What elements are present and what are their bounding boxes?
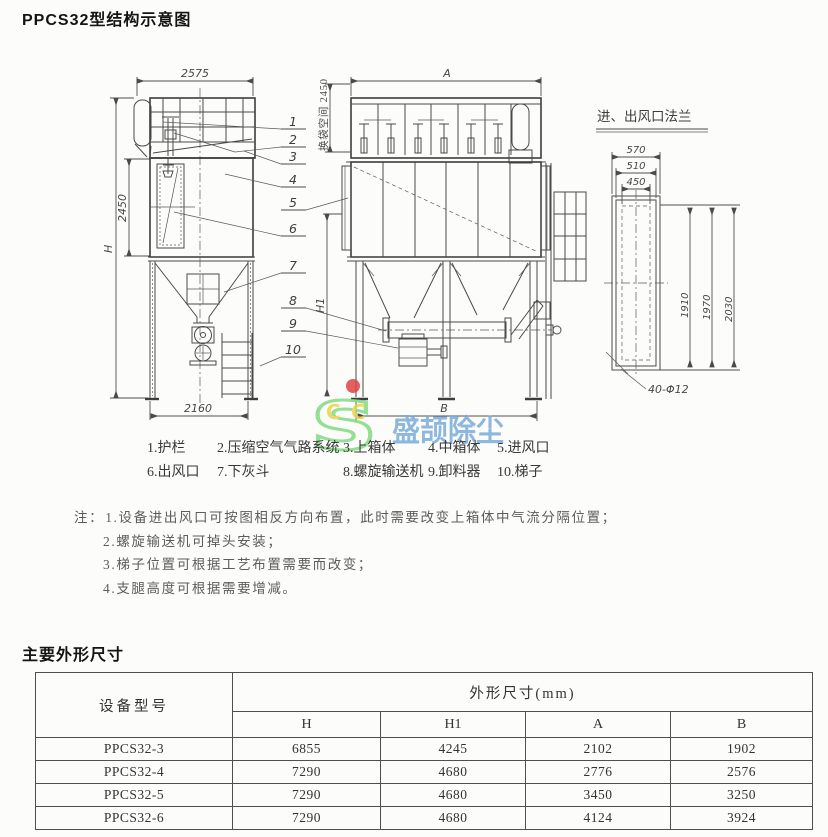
dim-flange-inner-width: 450 [626,177,645,188]
value-cell: 1902 [671,738,813,761]
front-view: A [314,67,586,421]
model-cell: PPCS32-4 [36,761,233,784]
legend-item-2: 2.压缩空气气路系统 [217,437,340,457]
table-header-h: H [233,712,381,738]
table-row: PPCS32-6 7290 4680 4124 3924 [36,807,813,830]
part-label-6: 6 [289,221,297,236]
dim-front-base-width: B [440,402,448,415]
dim-side-base-width: 2160 [184,402,212,415]
watermark-letter-c2: C [351,400,366,424]
value-cell: 3924 [671,807,813,830]
value-cell: 7290 [233,761,381,784]
value-cell: 7290 [233,784,381,807]
table-header-b: B [671,712,813,738]
note-3: 3.梯子位置可根据工艺布置需要而改变； [74,553,617,577]
value-cell: 2576 [671,761,813,784]
legend-item-7: 7.下灰斗 [217,461,270,481]
table-header-a: A [526,712,671,738]
part-label-7: 7 [289,258,297,273]
dim-overall-height: H [102,245,115,253]
flange-view: 进、出风口法兰 570 510 450 [596,109,740,396]
dimensions-table: 设备型号 外形尺寸(mm) H H1 A B PPCS32-3 6855 424… [35,672,813,830]
table-row: PPCS32-4 7290 4680 2776 2576 [36,761,813,784]
table-header-model: 设备型号 [36,673,233,738]
value-cell: 3450 [526,784,671,807]
model-cell: PPCS32-5 [36,784,233,807]
value-cell: 4680 [381,784,526,807]
part-label-1: 1 [289,114,297,129]
table-header-group: 外形尺寸(mm) [233,673,813,712]
side-view: 2575 H 2450 [102,67,350,420]
part-label-4: 4 [289,172,297,187]
value-cell: 4680 [381,761,526,784]
legend-item-5: 5.进风口 [497,437,550,457]
value-cell: 6855 [233,738,381,761]
part-label-3: 3 [289,149,297,164]
value-cell: 7290 [233,807,381,830]
dim-side-top-width: 2575 [181,67,209,80]
table-row: PPCS32-3 6855 4245 2102 1902 [36,738,813,761]
model-cell: PPCS32-3 [36,738,233,761]
legend-item-9: 9.卸料器 [428,461,481,481]
value-cell: 4124 [526,807,671,830]
value-cell: 2776 [526,761,671,784]
note-4: 4.支腿高度可根据需要增减。 [74,577,617,601]
dim-support-height: H1 [314,298,327,313]
table-header-h1: H1 [381,712,526,738]
notes-block: 注：1.设备进出风口可按图相反方向布置，此时需要改变上箱体中气流分隔位置； 2.… [74,506,617,600]
value-cell: 4245 [381,738,526,761]
dimensions-section-title: 主要外形尺寸 [22,641,124,665]
catalog-page: PPCS32型结构示意图 2575 H 2450 [0,0,828,837]
dim-flange-height-mid: 1970 [702,295,713,320]
part-label-10: 10 [285,342,301,357]
dim-flange-height-outer: 2030 [724,297,735,322]
part-label-5: 5 [289,195,297,210]
dim-flange-height-inner: 1910 [680,293,691,318]
value-cell: 3250 [671,784,813,807]
part-label-9: 9 [289,316,297,331]
technical-drawing: 2575 H 2450 [0,0,828,500]
part-label-8: 8 [289,293,297,308]
note-1: 1.设备进出风口可按图相反方向布置，此时需要改变上箱体中气流分隔位置； [105,510,617,525]
legend-item-6: 6.出风口 [147,461,200,481]
flange-view-title: 进、出风口法兰 [597,109,692,124]
watermark-letter-c1: C [326,400,341,424]
legend-item-3: 3.上箱体 [343,437,396,457]
legend-item-8: 8.螺旋输送机 [343,461,424,481]
dim-side-mid-height: 2450 [116,194,129,222]
dim-front-width: A [442,67,451,80]
legend-item-10: 10.梯子 [497,461,543,481]
dim-flange-mid-width: 510 [626,161,645,172]
dim-headroom: 换袋空间 2450 [317,79,330,151]
part-label-2: 2 [289,132,297,147]
table-row: PPCS32-5 7290 4680 3450 3250 [36,784,813,807]
legend-item-4: 4.中箱体 [428,437,481,457]
note-2: 2.螺旋输送机可掉头安装； [74,530,617,554]
model-cell: PPCS32-6 [36,807,233,830]
value-cell: 4680 [381,807,526,830]
value-cell: 2102 [526,738,671,761]
legend-item-1: 1.护栏 [147,437,186,457]
dim-bolt-spec: 40-Φ12 [648,383,689,396]
dim-flange-outer-width: 570 [626,145,645,156]
notes-prefix: 注： [74,510,104,525]
